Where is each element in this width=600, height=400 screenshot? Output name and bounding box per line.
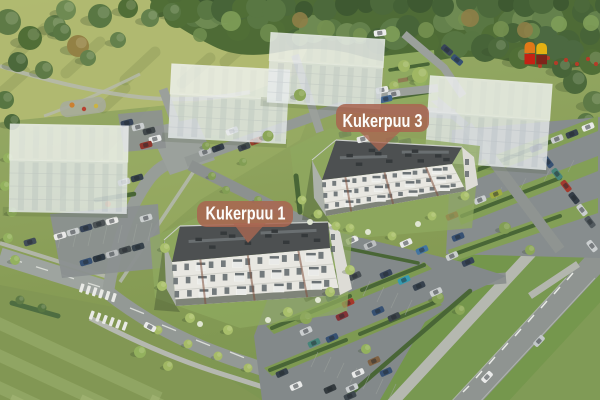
svg-text:Kukerpuu 3: Kukerpuu 3 — [343, 111, 423, 131]
svg-text:Kukerpuu 1: Kukerpuu 1 — [206, 204, 286, 224]
